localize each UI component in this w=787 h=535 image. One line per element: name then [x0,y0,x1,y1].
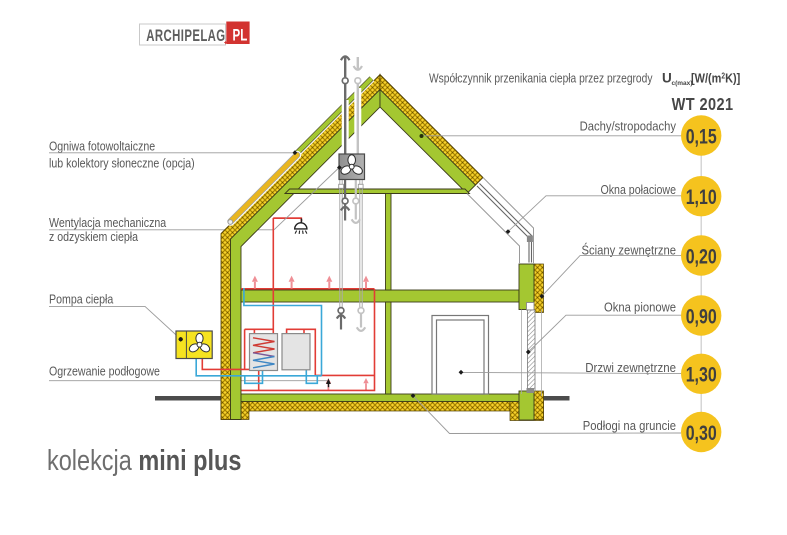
svg-text:c(max): c(max) [672,80,693,87]
svg-text:ARCHIPELAG: ARCHIPELAG [146,27,225,46]
svg-text:[W/(m2K)]: [W/(m2K)] [691,71,740,86]
svg-text:Wentylacja mechaniczna: Wentylacja mechaniczna [49,216,167,230]
svg-text:Współczynnik przenikania ciepł: Współczynnik przenikania ciepła przez pr… [429,73,653,86]
svg-text:1,30: 1,30 [686,364,717,388]
svg-text:1,10: 1,10 [686,186,717,210]
svg-text:lub kolektory słoneczne (opcja: lub kolektory słoneczne (opcja) [49,157,195,171]
svg-text:Okna pionowe: Okna pionowe [604,300,676,315]
svg-text:Ogniwa fotowoltaiczne: Ogniwa fotowoltaiczne [49,140,156,154]
svg-text:kolekcja mini plus: kolekcja mini plus [47,444,241,477]
svg-text:Pompa ciepła: Pompa ciepła [49,293,114,307]
svg-text:Ogrzewanie podłogowe: Ogrzewanie podłogowe [49,365,160,379]
svg-text:Podłogi na gruncie: Podłogi na gruncie [583,418,677,433]
svg-text:0,20: 0,20 [686,245,717,269]
svg-text:PL: PL [233,27,248,46]
svg-text:WT 2021: WT 2021 [672,95,734,115]
svg-text:0,90: 0,90 [686,305,717,329]
svg-text:Dachy/stropodachy: Dachy/stropodachy [580,119,676,134]
svg-text:U: U [662,71,672,86]
svg-text:z odzyskiem ciepła: z odzyskiem ciepła [49,230,138,244]
svg-text:0,30: 0,30 [686,422,717,446]
svg-text:0,15: 0,15 [686,125,717,149]
svg-text:Okna połaciowe: Okna połaciowe [600,183,676,197]
